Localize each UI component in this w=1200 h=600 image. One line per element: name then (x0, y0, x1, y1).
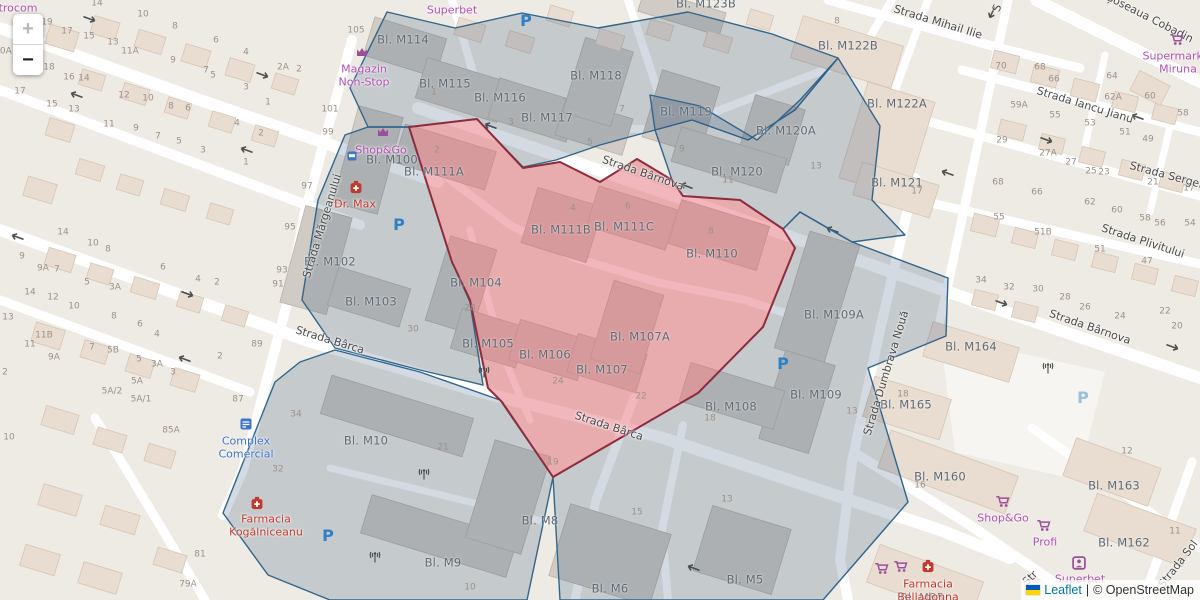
osm-copyright: © OpenStreetMap (1093, 583, 1194, 597)
attribution-bar: Leaflet | © OpenStreetMap (1021, 580, 1200, 600)
map-container[interactable]: 14108642A21051019997959391898785A8179A19… (0, 0, 1200, 600)
ukraine-flag-icon (1026, 585, 1040, 595)
leaflet-link[interactable]: Leaflet (1044, 583, 1082, 597)
attribution-separator: | (1086, 583, 1089, 597)
zoom-control: + − (13, 14, 43, 75)
map-canvas[interactable] (0, 0, 1200, 600)
zoom-in-button[interactable]: + (13, 14, 43, 45)
zoom-out-button[interactable]: − (13, 45, 43, 75)
